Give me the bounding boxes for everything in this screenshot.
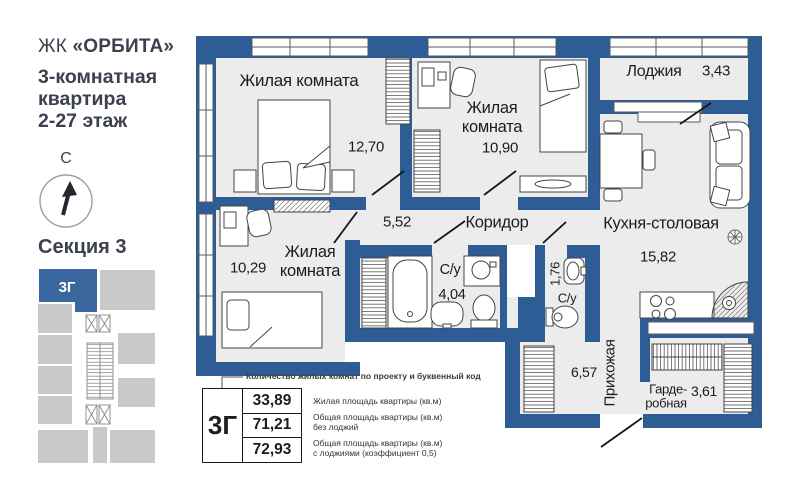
wardrobe-hatch: [386, 58, 410, 124]
room-area-kitchen: 15,82: [640, 249, 676, 266]
room-area-entry-hall: 6,57: [571, 364, 597, 380]
wardrobe-hatch: [724, 344, 752, 412]
room-area-loggia: 3,43: [702, 63, 730, 80]
window: [199, 64, 213, 202]
legend-label-living-area: Жилая площадь квартиры (кв.м): [313, 396, 493, 406]
room-area-living-2: 10,90: [482, 140, 518, 157]
sofa-icon: [710, 122, 750, 208]
room-label-corridor: Коридор: [465, 214, 528, 233]
kitchen-counter-icon: [640, 292, 714, 320]
window: [252, 38, 368, 56]
desk-icon: [220, 206, 248, 246]
water-heater-icon: [464, 256, 500, 286]
double-bed-icon: [258, 100, 330, 194]
legend-unit-code: 3Г: [203, 389, 243, 462]
wardrobe-hatch: [524, 346, 554, 412]
wardrobe-hatch: [652, 344, 722, 370]
sink-icon: [431, 302, 463, 328]
legend-callout: Количество жилых комнат по проекту и бук…: [246, 371, 481, 381]
shelf-hatch: [274, 200, 330, 212]
single-bed-icon: [540, 60, 586, 152]
room-label-bathroom: С/у: [440, 262, 461, 278]
window: [428, 38, 556, 56]
legend-value-total-area: 71,21: [243, 414, 301, 439]
room-label-living-1: Жилая комната: [240, 71, 359, 91]
room-label-wc: С/у: [558, 291, 577, 306]
room-label-kitchen: Кухня-столовая: [603, 215, 719, 234]
vent-fan-icon: [728, 230, 742, 244]
bathtub-icon: [388, 256, 432, 328]
room-label-wardrobe-line1: Гарде-: [649, 382, 687, 397]
wardrobe-hatch: [414, 130, 440, 192]
room-label-wardrobe-line2: робная: [645, 396, 687, 411]
legend-table: 3Г 33,89 71,21 72,93: [202, 388, 302, 463]
legend-label-total-area-with-loggia: Общая площадь квартиры (кв.м) с лоджиями…: [313, 438, 493, 458]
window: [199, 214, 213, 336]
floorplan-page: ЖК «ОРБИТА» 3-комнатная квартира 2-27 эт…: [0, 0, 800, 500]
room-area-living-1: 12,70: [348, 139, 384, 156]
legend-label-total-area: Общая площадь квартиры (кв.м) без лоджий: [313, 412, 493, 432]
nightstand-icon: [234, 170, 256, 192]
legend-value-living-area: 33,89: [243, 389, 301, 414]
room-area-bathroom: 4,04: [438, 287, 465, 303]
window: [610, 38, 748, 56]
sink-icon: [564, 258, 586, 284]
room-label-entry-hall: Прихожая: [602, 339, 619, 406]
toilet-icon: [471, 295, 497, 328]
room-area-living-3: 10,29: [230, 260, 266, 277]
entrance-door-swing: [601, 418, 642, 447]
single-bed-icon: [222, 292, 322, 348]
dresser-icon: [520, 176, 586, 192]
nightstand-icon: [332, 170, 354, 192]
shaft-niche: [507, 245, 535, 297]
room-label-loggia: Лоджия: [627, 63, 682, 81]
room-area-corridor: 5,52: [383, 214, 411, 231]
kitchen-wall-niche: [648, 322, 754, 334]
washing-machine-hatch: [362, 258, 386, 328]
legend-value-total-area-with-loggia: 72,93: [243, 438, 301, 462]
toilet-icon: [546, 306, 578, 328]
room-area-wardrobe: 3,61: [691, 383, 717, 399]
room-area-wc: 1,76: [548, 262, 563, 286]
room-label-living-3: Жилая комната: [260, 243, 360, 281]
room-label-living-2: Жилая комната: [446, 99, 538, 137]
